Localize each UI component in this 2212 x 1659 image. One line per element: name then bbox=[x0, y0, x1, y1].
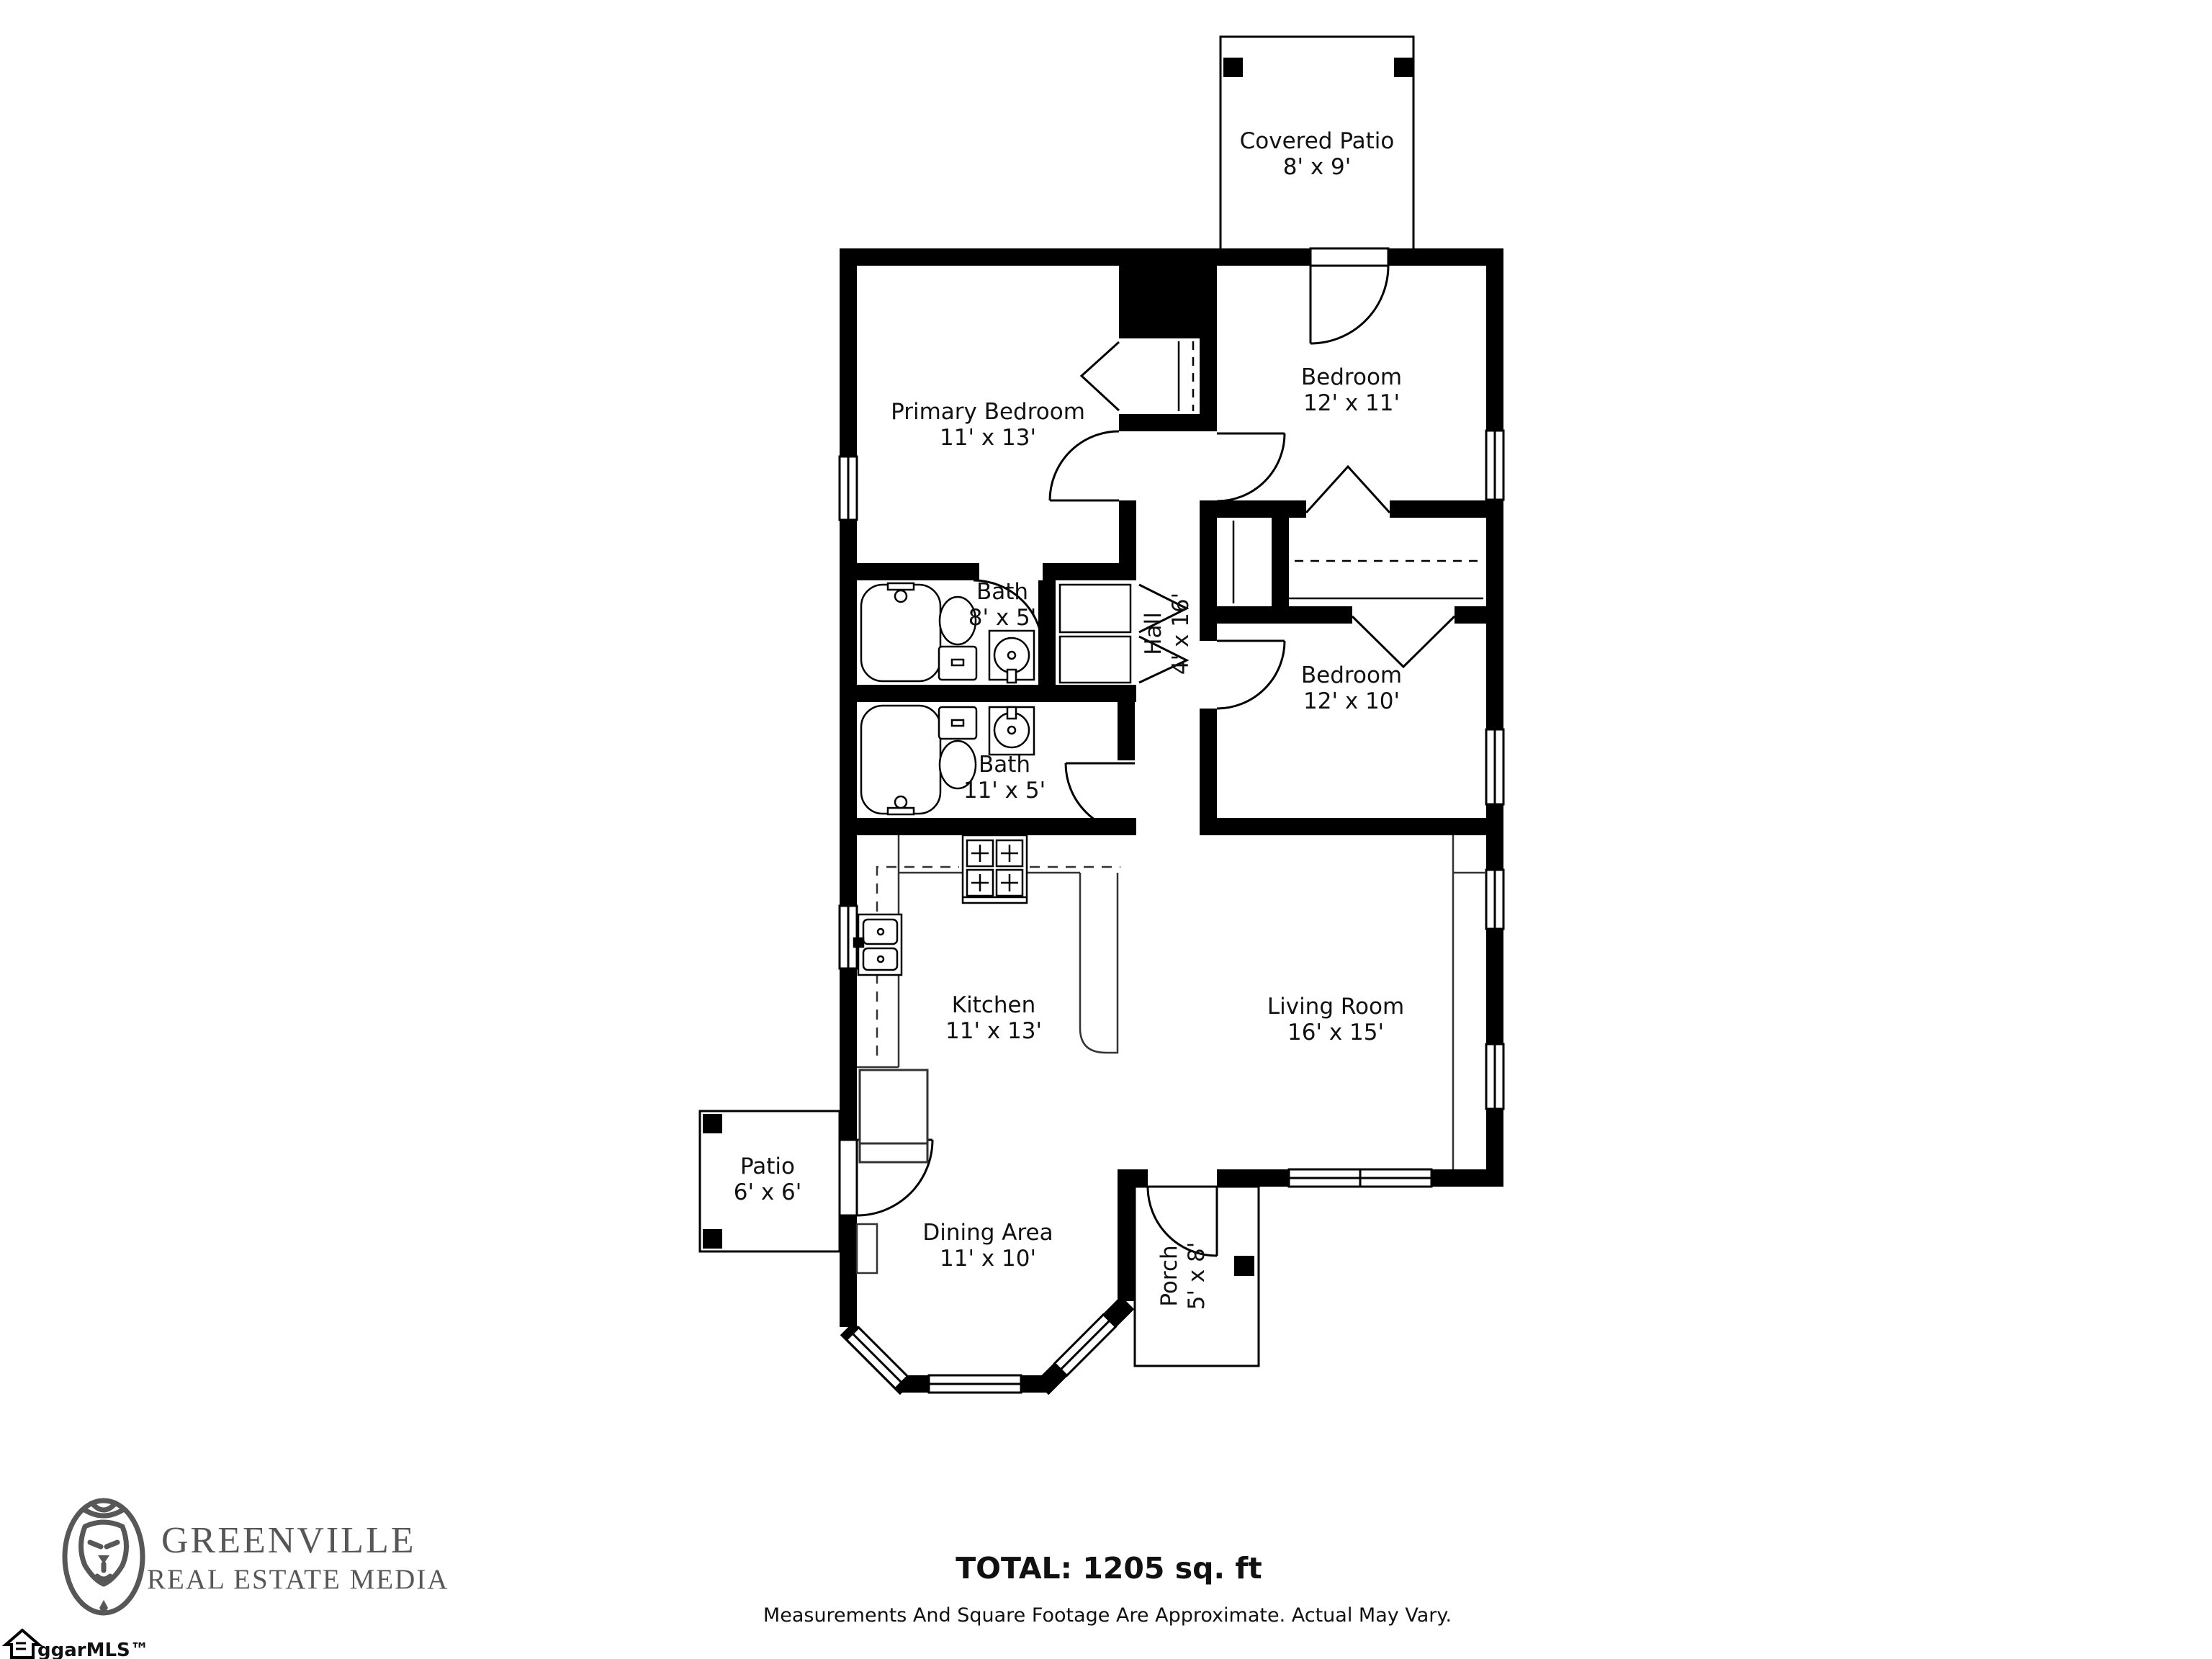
dining-niche bbox=[857, 1224, 877, 1273]
chevron-bedroom-12x11-closet bbox=[1306, 467, 1390, 513]
window-living-bottom-double bbox=[1289, 1169, 1431, 1187]
window-bedroom-12x10 bbox=[1486, 729, 1503, 804]
kitchen-sink bbox=[854, 914, 902, 975]
svg-text:Hall: Hall bbox=[1141, 612, 1166, 655]
floor-plan-canvas: Covered Patio 8' x 9' Primary Bedroom 11… bbox=[0, 0, 2212, 1659]
bathtub-1 bbox=[861, 583, 940, 681]
svg-text:Primary Bedroom: Primary Bedroom bbox=[891, 399, 1085, 425]
svg-text:Patio: Patio bbox=[740, 1154, 795, 1179]
stove bbox=[963, 835, 1027, 903]
floor-plan-page: { "title": "Floor Plan", "floor_plan": {… bbox=[0, 0, 2212, 1659]
sink-2 bbox=[989, 707, 1034, 755]
svg-text:Bedroom: Bedroom bbox=[1301, 662, 1402, 688]
svg-text:11' x 13': 11' x 13' bbox=[945, 1018, 1042, 1044]
label-dining-area: Dining Area 11' x 10' bbox=[922, 1220, 1053, 1272]
linen-shelf-lower bbox=[1060, 637, 1130, 683]
label-bedroom-12x11: Bedroom 12' x 11' bbox=[1301, 364, 1402, 416]
svg-text:Kitchen: Kitchen bbox=[952, 992, 1036, 1018]
brand-logo: GREENVILLE REAL ESTATE MEDIA bbox=[65, 1501, 449, 1616]
svg-text:Porch: Porch bbox=[1156, 1245, 1182, 1306]
svg-text:Covered Patio: Covered Patio bbox=[1240, 128, 1395, 154]
label-kitchen: Kitchen 11' x 13' bbox=[945, 992, 1042, 1044]
label-bedroom-12x10: Bedroom 12' x 10' bbox=[1301, 662, 1402, 714]
chevron-bedroom-12x10-closet bbox=[1352, 616, 1455, 667]
window-living-right-upper bbox=[1486, 870, 1503, 929]
total-square-footage: TOTAL: 1205 sq. ft bbox=[956, 1551, 1262, 1586]
mls-watermark: ggarMLS™ bbox=[6, 1630, 149, 1659]
living-room-detail bbox=[1453, 835, 1486, 1169]
svg-text:11' x 5': 11' x 5' bbox=[963, 778, 1046, 804]
svg-text:Living Room: Living Room bbox=[1267, 994, 1404, 1020]
svg-text:16' x 15': 16' x 15' bbox=[1287, 1020, 1384, 1046]
toilet-2 bbox=[939, 707, 976, 788]
porch-post bbox=[1234, 1256, 1254, 1276]
brand-name-line1: GREENVILLE bbox=[161, 1520, 415, 1561]
patio-post-bottomleft bbox=[703, 1229, 722, 1249]
svg-text:11' x 10': 11' x 10' bbox=[940, 1246, 1036, 1272]
svg-text:8' x 9': 8' x 9' bbox=[1283, 154, 1352, 180]
label-hall: Hall 4' x 16' bbox=[1141, 593, 1194, 675]
disclaimer-text: Measurements And Square Footage Are Appr… bbox=[763, 1604, 1452, 1627]
svg-text:Bedroom: Bedroom bbox=[1301, 364, 1402, 390]
label-living-room: Living Room 16' x 15' bbox=[1267, 994, 1404, 1046]
door-bedroom-12x11-hall bbox=[1217, 433, 1285, 501]
lion-icon bbox=[65, 1501, 143, 1616]
label-primary-bedroom: Primary Bedroom 11' x 13' bbox=[891, 399, 1085, 451]
label-patio: Patio 6' x 6' bbox=[734, 1154, 802, 1205]
svg-text:8' x 5': 8' x 5' bbox=[968, 605, 1037, 631]
svg-text:6' x 6': 6' x 6' bbox=[734, 1179, 802, 1205]
svg-text:4' x 16': 4' x 16' bbox=[1168, 593, 1194, 675]
window-bay-left bbox=[847, 1328, 908, 1389]
watermark-text: ggarMLS™ bbox=[37, 1640, 149, 1659]
window-bay-bottom bbox=[929, 1375, 1021, 1393]
svg-text:Bath: Bath bbox=[979, 752, 1030, 778]
door-bedroom-12x10-hall bbox=[1217, 641, 1285, 709]
brand-name-line2: REAL ESTATE MEDIA bbox=[147, 1564, 449, 1595]
sink-1 bbox=[989, 631, 1034, 683]
bathtub-2 bbox=[861, 706, 940, 814]
window-kitchen bbox=[840, 906, 857, 968]
window-living-right-lower bbox=[1486, 1044, 1503, 1109]
svg-text:5' x 8': 5' x 8' bbox=[1184, 1242, 1210, 1310]
svg-text:11' x 13': 11' x 13' bbox=[940, 425, 1036, 451]
patio-post-topleft bbox=[703, 1114, 722, 1133]
linen-shelf-upper bbox=[1060, 585, 1130, 632]
window-bedroom-12x11 bbox=[1486, 431, 1503, 500]
refrigerator bbox=[860, 1070, 927, 1162]
window-bay-right bbox=[1055, 1315, 1116, 1376]
door-primary-bedroom bbox=[1050, 431, 1119, 500]
svg-text:Dining Area: Dining Area bbox=[922, 1220, 1053, 1246]
window-primary-bedroom bbox=[840, 457, 857, 520]
label-bath-8x5: Bath 8' x 5' bbox=[968, 579, 1037, 631]
chevron-primary-closet bbox=[1082, 342, 1119, 410]
svg-text:Bath: Bath bbox=[976, 579, 1028, 605]
kitchen-peninsula bbox=[1080, 873, 1118, 1053]
svg-text:12' x 11': 12' x 11' bbox=[1303, 390, 1400, 416]
door-bedroom-12x11-patio bbox=[1310, 248, 1388, 343]
svg-text:12' x 10': 12' x 10' bbox=[1303, 688, 1400, 714]
covered-patio-post-left bbox=[1223, 58, 1243, 77]
covered-patio-post-right bbox=[1394, 58, 1413, 77]
